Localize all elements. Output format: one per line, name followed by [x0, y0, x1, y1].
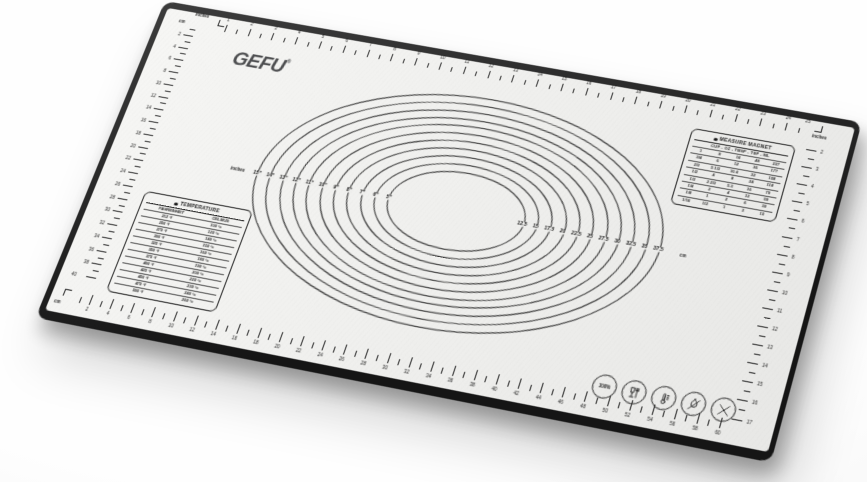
top-ruler-tick: [511, 75, 514, 82]
right-ruler-minor-tick: [798, 193, 804, 195]
right-ruler-number: 7: [796, 236, 800, 241]
bottom-ruler-tick: [131, 303, 136, 313]
left-ruler-tick: [145, 140, 151, 142]
left-ruler-tick: [190, 29, 196, 31]
bottom-ruler-tick: [268, 334, 271, 340]
left-ruler-tick: [175, 65, 181, 67]
left-ruler-tick: [183, 34, 193, 37]
bottom-ruler-tick: [640, 406, 643, 412]
left-ruler-number: 14: [136, 103, 152, 110]
bottom-ruler-number: 10: [167, 323, 174, 329]
right-ruler-tick: [796, 183, 807, 186]
right-ruler-number: 16: [751, 399, 758, 405]
bottom-ruler-tick: [430, 361, 434, 371]
top-ruler-tick: [634, 97, 637, 105]
bottom-ruler-number: 16: [231, 335, 238, 341]
top-ruler-number: 19: [660, 93, 666, 98]
bottom-ruler-tick: [365, 349, 370, 359]
top-ruler-number: 3: [274, 26, 278, 31]
left-ruler-tick: [86, 276, 96, 279]
left-ruler-tick: [134, 166, 140, 168]
left-ruler-tick: [118, 197, 128, 200]
right-ruler-minor-tick: [764, 317, 771, 319]
bottom-ruler-tick: [289, 338, 292, 344]
top-ruler-number: 10: [440, 55, 446, 60]
bottom-ruler-tick: [419, 363, 422, 369]
right-ruler-number: 9: [786, 271, 790, 276]
right-ruler-number: 5: [806, 201, 810, 206]
top-ruler-tick: [366, 50, 370, 57]
right-ruler-minor-tick: [738, 409, 745, 411]
left-ruler-number: 12: [141, 90, 157, 97]
top-ruler-number: 9: [417, 51, 421, 56]
right-ruler-minor-tick: [769, 299, 776, 301]
left-ruler-tick: [138, 146, 148, 149]
top-ruler-number: 21: [710, 102, 716, 108]
thermometer-icon: [174, 202, 179, 206]
thermometer-glyph: [654, 389, 673, 406]
right-ruler-minor-tick: [779, 263, 786, 265]
circle-inch-label: 15": [251, 170, 262, 176]
bottom-ruler-tick: [152, 307, 157, 317]
bottom-ruler-tick: [215, 320, 220, 330]
bottom-ruler-tick: [529, 385, 532, 391]
top-ruler-tick: [295, 37, 299, 44]
top-ruler-number: 13: [512, 67, 518, 72]
bottom-ruler-tick: [618, 402, 621, 408]
left-ruler-tick: [160, 103, 166, 105]
left-ruler-tick: [97, 250, 107, 253]
bottom-ruler-tick: [332, 346, 335, 352]
right-ruler-minor-tick: [808, 158, 814, 160]
left-ruler-tick: [169, 71, 179, 74]
left-ruler-tick: [119, 205, 125, 207]
top-ruler-tick: [224, 25, 228, 32]
left-ruler-number: 24: [110, 166, 126, 173]
left-ruler-tick: [129, 179, 135, 181]
bottom-ruler-tick: [662, 411, 665, 417]
left-ruler-tick: [112, 210, 122, 213]
right-ruler-number: 13: [767, 344, 774, 350]
top-ruler-tick: [487, 71, 490, 78]
bottom-ruler-number: 48: [579, 403, 586, 409]
bottom-ruler-tick: [551, 389, 554, 395]
bottom-ruler-number: 36: [447, 377, 454, 383]
top-ruler-minor-tick: [475, 71, 478, 76]
bottom-ruler-tick: [496, 374, 500, 384]
bottom-ruler-tick: [474, 370, 478, 380]
bottom-ruler-number: 22: [295, 348, 302, 354]
top-ruler-number: 6: [345, 38, 349, 43]
right-ruler-number: 10: [782, 289, 789, 295]
bottom-ruler-number: 44: [535, 395, 542, 401]
bottom-ruler-tick: [376, 355, 379, 361]
left-ruler-tick: [159, 96, 169, 99]
left-ruler-number: 2: [166, 29, 182, 36]
bottom-ruler-number: 34: [425, 373, 432, 379]
left-ruler-tick: [102, 236, 112, 239]
bottom-ruler-tick: [518, 378, 522, 388]
bottom-ruler-tick: [225, 326, 228, 332]
left-ruler-tick: [155, 115, 161, 117]
left-ruler-tick: [98, 257, 104, 259]
left-ruler-number: 20: [120, 141, 136, 148]
top-ruler-tick: [709, 110, 712, 118]
top-ruler-minor-tick: [499, 76, 502, 81]
top-right-corner-bracket: [814, 125, 823, 133]
right-ruler-tick: [732, 418, 743, 421]
right-ruler-tick: [767, 289, 778, 292]
left-ruler-number: 4: [161, 41, 177, 48]
bottom-ruler-number: 60: [714, 430, 721, 436]
top-ruler-tick: [610, 92, 613, 100]
left-ruler-tick: [140, 153, 146, 155]
bottom-ruler-number: 12: [189, 327, 196, 333]
bottom-ruler-number: 38: [469, 382, 476, 388]
right-ruler-tick: [752, 344, 763, 347]
product-photo: GEFU® inches cm 25 inches 40 cm 12345678…: [0, 0, 867, 482]
top-ruler-tick: [760, 119, 763, 127]
top-ruler-minor-tick: [697, 110, 699, 115]
right-ruler-number: 12: [772, 326, 779, 332]
top-ruler-minor-tick: [747, 119, 749, 124]
top-ruler-minor-tick: [722, 115, 724, 120]
top-ruler-tick: [390, 54, 394, 61]
bottom-ruler-tick: [78, 297, 81, 303]
bottom-ruler-number: 46: [557, 399, 564, 405]
top-ruler-number: 20: [685, 98, 691, 103]
top-ruler-minor-tick: [451, 67, 454, 72]
left-ruler-number: 8: [151, 66, 167, 73]
right-ruler-tick: [772, 271, 783, 274]
bottom-ruler-tick: [397, 359, 400, 365]
bottom-ruler-number: 4: [106, 311, 110, 316]
right-ruler-tick: [792, 201, 803, 204]
bottom-ruler-number: 56: [669, 421, 676, 427]
circle-inches-unit-label: inches: [229, 165, 247, 173]
left-ruler-tick: [123, 184, 133, 187]
measure-table: MEASURE MAGNET CUP - OZ - TBSP - TSP - M…: [670, 128, 796, 223]
top-ruler-end-number: 25: [805, 118, 811, 124]
right-ruler-tick: [737, 399, 748, 402]
bottom-ruler-tick: [386, 353, 390, 363]
top-ruler-minor-tick: [622, 97, 624, 102]
bottom-ruler-tick: [463, 372, 466, 378]
top-ruler-tick: [734, 114, 737, 122]
bottom-ruler-number: 18: [252, 339, 259, 345]
top-ruler-number: 1: [226, 18, 230, 23]
bottom-ruler-tick: [584, 391, 588, 401]
right-ruler-tick: [742, 380, 753, 383]
right-ruler-number: 17: [746, 418, 753, 424]
top-ruler-tick: [684, 105, 687, 113]
top-ruler-minor-tick: [307, 42, 310, 47]
bottom-ruler-tick: [540, 383, 544, 393]
top-ruler-tick: [318, 41, 322, 48]
top-ruler-tick: [659, 101, 662, 109]
right-ruler-minor-tick: [784, 245, 791, 247]
100-percent-label: 100%: [598, 383, 611, 390]
no-cutting-icon: [708, 395, 739, 424]
top-ruler-number: 5: [321, 34, 325, 39]
right-ruler-number: 4: [811, 184, 815, 189]
bottom-ruler-tick: [236, 324, 241, 334]
left-ruler-tick: [150, 128, 156, 130]
top-ruler-minor-tick: [573, 89, 575, 94]
bottom-ruler-tick: [441, 368, 444, 374]
bottom-ruler-number: 2: [85, 307, 89, 312]
left-ruler-number: 34: [84, 231, 101, 239]
right-ruler-number: 2: [820, 149, 824, 154]
top-ruler-number: 14: [537, 72, 543, 77]
bottom-ruler-tick: [162, 313, 165, 319]
right-ruler-minor-tick: [744, 391, 751, 393]
circle-cm-unit-label: cm: [678, 252, 688, 259]
top-ruler-minor-tick: [772, 124, 774, 129]
top-ruler-tick: [463, 67, 466, 74]
bottom-ruler-tick: [311, 342, 314, 348]
left-ruler-tick: [107, 223, 117, 226]
bottom-ruler-tick: [141, 309, 144, 315]
top-ruler-minor-tick: [597, 93, 599, 98]
left-ruler-tick: [124, 192, 130, 194]
right-ruler-minor-tick: [759, 335, 766, 337]
top-ruler-number: 17: [610, 85, 616, 90]
top-ruler-minor-tick: [236, 30, 239, 35]
bottom-ruler-number: 24: [317, 352, 324, 358]
bottom-ruler-number: 40: [491, 386, 498, 392]
left-ruler-number: 36: [78, 244, 95, 252]
top-ruler-minor-tick: [548, 84, 550, 89]
top-ruler-minor-tick: [647, 102, 649, 107]
right-ruler-minor-tick: [803, 175, 809, 177]
top-ruler-tick: [536, 79, 539, 86]
top-ruler-number: 15: [561, 76, 567, 81]
right-ruler-number: 14: [762, 362, 769, 368]
bottom-ruler-number: 30: [381, 365, 388, 371]
bottom-ruler-tick: [173, 311, 178, 321]
top-ruler-number: 7: [369, 42, 373, 47]
left-ruler-number: 38: [73, 257, 90, 265]
bottom-ruler-number: 20: [274, 343, 281, 349]
bottom-ruler-tick: [120, 305, 123, 311]
bottom-ruler-tick: [300, 336, 305, 346]
bottom-ruler-number: 50: [602, 408, 609, 414]
top-ruler-minor-tick: [259, 34, 262, 39]
left-ruler-number: 18: [126, 128, 142, 135]
left-ruler-tick: [164, 83, 174, 86]
left-ruler-tick: [143, 133, 153, 136]
top-ruler-tick: [560, 84, 563, 91]
bottom-ruler-tick: [194, 315, 199, 325]
magnet-icon: [713, 137, 718, 141]
top-ruler-minor-tick: [378, 55, 381, 60]
bottom-ruler-number: 42: [513, 390, 520, 396]
bottom-ruler-tick: [562, 387, 566, 397]
left-ruler-tick: [165, 90, 171, 92]
100-percent-icon: 100%: [589, 372, 620, 400]
left-ruler-tick: [180, 53, 186, 55]
top-ruler-number: 18: [635, 89, 641, 94]
top-ruler-minor-tick: [797, 128, 799, 133]
right-ruler-number: 3: [815, 166, 819, 171]
right-ruler-tick: [757, 325, 768, 328]
top-ruler-number: 23: [760, 111, 766, 117]
bottom-ruler-unit-label: cm: [53, 298, 61, 304]
left-ruler-unit-label: cm: [178, 19, 186, 24]
right-ruler-minor-tick: [793, 210, 799, 212]
left-ruler-tick: [170, 78, 176, 80]
bottom-ruler-tick: [685, 415, 688, 421]
bottom-ruler-tick: [408, 357, 412, 367]
top-ruler-minor-tick: [524, 80, 527, 85]
left-ruler-tick: [108, 231, 114, 233]
bottom-ruler-tick: [452, 366, 456, 376]
left-ruler-number: 26: [105, 179, 121, 186]
right-ruler-tick: [762, 307, 773, 310]
baking-mat: GEFU® inches cm 25 inches 40 cm 12345678…: [45, 8, 855, 452]
left-ruler-tick: [153, 108, 163, 111]
top-ruler-tick: [585, 88, 588, 96]
bottom-ruler-number: 58: [691, 425, 698, 431]
left-ruler-number: 10: [146, 78, 162, 85]
right-ruler-tick: [782, 236, 793, 239]
bottom-ruler-tick: [507, 380, 510, 386]
right-ruler-minor-tick: [774, 281, 781, 283]
left-ruler-tick: [185, 41, 191, 43]
bottom-ruler-tick: [257, 328, 262, 338]
bottom-ruler-number: 28: [360, 360, 367, 366]
left-ruler-tick: [178, 46, 188, 49]
top-ruler-number: 2: [250, 22, 254, 27]
top-ruler-number: 16: [586, 80, 592, 85]
left-ruler-number: 16: [131, 115, 147, 122]
bottom-ruler-tick: [204, 321, 207, 327]
bottom-left-corner-bracket: [63, 289, 73, 297]
right-ruler-tick: [801, 166, 812, 169]
left-ruler-number: 6: [156, 53, 172, 60]
right-ruler-tick: [806, 149, 817, 152]
top-ruler-tick: [271, 33, 275, 40]
top-ruler-tick: [785, 123, 788, 131]
temperature-table-rows: 212 °f100 °c250 °f120 °c275 °f140 °c300 …: [112, 209, 242, 309]
dishwasher-safe-icon: [618, 378, 649, 406]
right-ruler-minor-tick: [749, 372, 756, 374]
top-ruler-tick: [438, 62, 442, 69]
bottom-ruler-tick: [279, 332, 284, 342]
bottom-ruler-tick: [110, 299, 115, 309]
left-ruler-tick: [114, 218, 120, 220]
dishwasher-glyph: [624, 384, 643, 401]
top-ruler-minor-tick: [283, 38, 286, 43]
bottom-ruler-tick: [354, 351, 357, 357]
top-ruler-number: 11: [464, 59, 470, 64]
top-ruler-number: 4: [297, 30, 301, 35]
top-ruler-number: 22: [735, 106, 741, 112]
bottom-ruler-number: 52: [624, 412, 631, 418]
bottom-ruler-tick: [573, 393, 576, 399]
left-ruler-tick: [133, 159, 143, 162]
right-ruler-tick: [747, 362, 758, 365]
bottom-ruler-tick: [99, 301, 102, 307]
crossed-out-glyph: [714, 401, 733, 418]
left-ruler-number: 28: [100, 192, 116, 199]
left-ruler-tick: [173, 59, 183, 62]
right-ruler-number: 15: [756, 381, 763, 387]
top-ruler-minor-tick: [330, 46, 333, 51]
bottom-ruler-tick: [89, 295, 94, 305]
bottom-ruler-number: 6: [127, 315, 131, 320]
top-ruler-number: 12: [488, 63, 494, 68]
left-ruler-end-number: 40: [62, 270, 78, 277]
bottom-ruler-tick: [708, 420, 711, 426]
left-ruler-number: 32: [89, 218, 106, 226]
bottom-ruler-tick: [247, 330, 250, 336]
right-ruler-minor-tick: [754, 354, 761, 356]
registered-mark: ®: [285, 59, 291, 65]
temperature-table: TEMPERATURE FAHRENHEIT CELSIUS 212 °f100…: [106, 191, 254, 313]
bottom-ruler-tick: [322, 340, 327, 350]
top-ruler-tick: [414, 58, 418, 65]
top-ruler-tick: [342, 46, 346, 53]
bottom-ruler-tick: [595, 398, 598, 404]
bottom-ruler-number: 8: [148, 319, 152, 324]
top-ruler-minor-tick: [402, 59, 405, 64]
bottom-ruler-number: 14: [210, 331, 217, 337]
bottom-ruler-number: 32: [403, 369, 410, 375]
right-ruler-tick: [787, 218, 798, 221]
bottom-ruler-number: 26: [338, 356, 345, 362]
no-open-flame-icon: [678, 390, 709, 419]
top-ruler-tick: [247, 29, 251, 36]
left-ruler-tick: [92, 270, 98, 272]
right-ruler-number: 11: [777, 307, 783, 313]
gefu-logo: GEFU®: [229, 44, 293, 77]
right-ruler-number: 6: [801, 218, 805, 223]
bottom-ruler-tick: [485, 376, 488, 382]
top-ruler-minor-tick: [426, 63, 429, 68]
gefu-logo-text: GEFU: [229, 48, 288, 77]
left-ruler-tick: [128, 172, 138, 175]
left-ruler-tick: [103, 244, 109, 246]
right-ruler-minor-tick: [789, 228, 796, 230]
right-ruler-unit-label: inches: [811, 133, 827, 140]
left-ruler-number: 30: [94, 205, 110, 212]
bottom-ruler-number: 54: [646, 416, 653, 422]
top-ruler-number: 24: [785, 115, 791, 121]
top-ruler-minor-tick: [354, 50, 357, 55]
left-ruler-tick: [91, 263, 101, 266]
top-ruler-unit-label: inches: [195, 12, 210, 19]
top-ruler-minor-tick: [672, 106, 674, 111]
bottom-ruler-tick: [674, 409, 678, 420]
right-ruler-number: 8: [791, 254, 795, 259]
left-ruler-number: 22: [115, 153, 131, 160]
flame-glyph: [684, 395, 703, 412]
bottom-ruler-tick: [343, 345, 348, 355]
top-ruler-number: 8: [393, 47, 397, 52]
bottom-ruler-tick: [183, 317, 186, 323]
mat-surface: GEFU® inches cm 25 inches 40 cm 12345678…: [45, 8, 855, 452]
left-ruler-tick: [148, 121, 158, 124]
right-ruler-tick: [777, 253, 788, 256]
